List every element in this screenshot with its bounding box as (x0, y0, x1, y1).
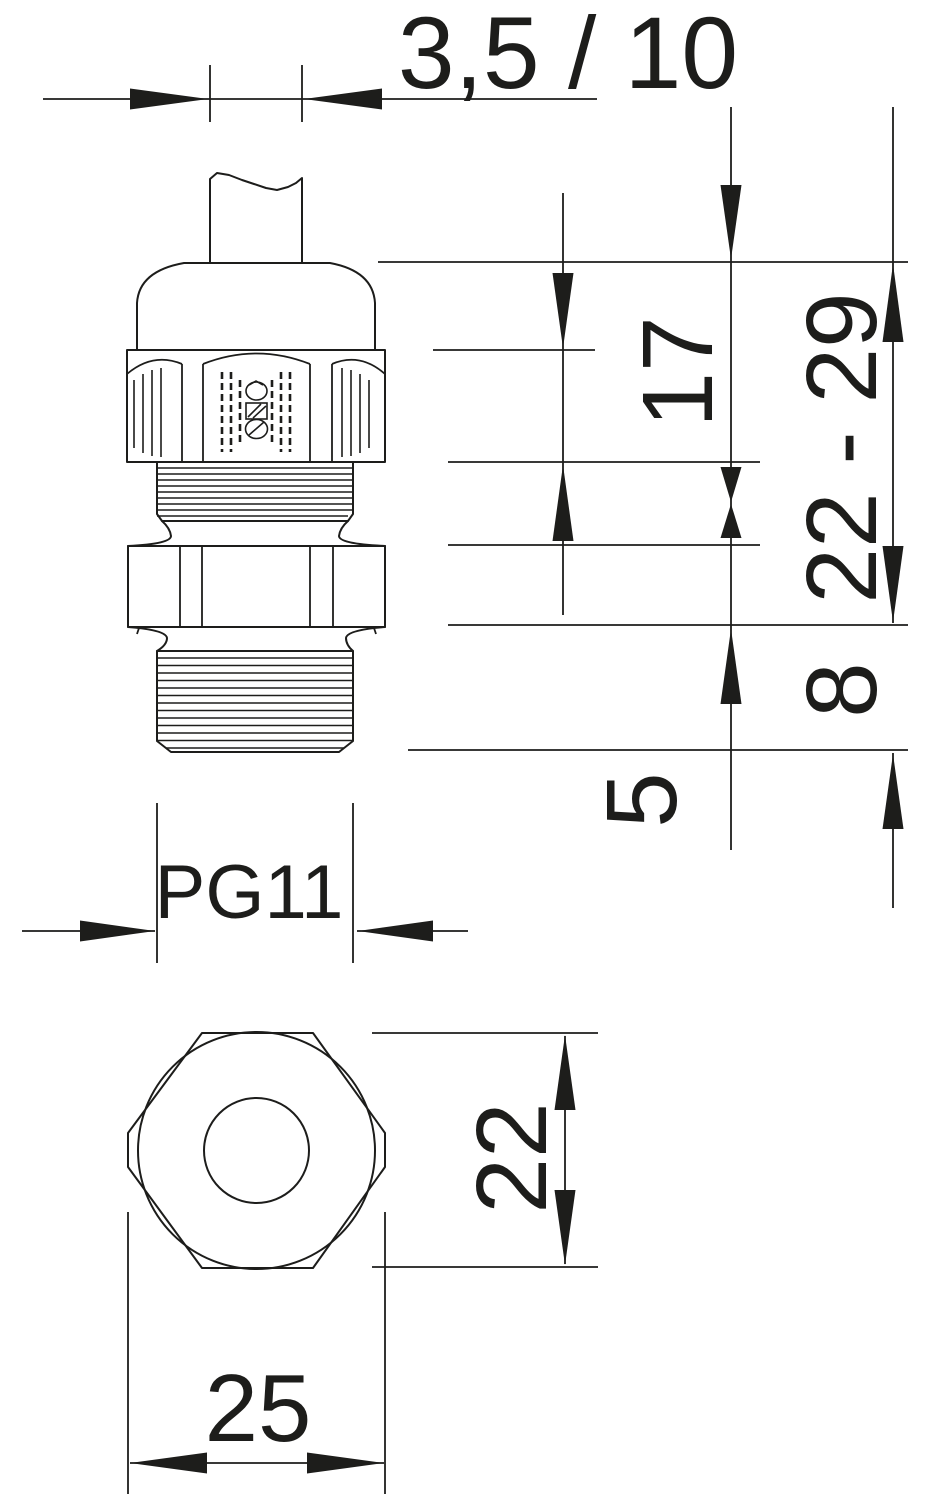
arrow-down-icon (553, 273, 574, 348)
side-view (127, 173, 385, 752)
lower-waist-right (346, 627, 385, 651)
arrow-up-icon (553, 465, 574, 541)
lower-waist-left (128, 627, 167, 651)
arrow-left-icon (130, 1453, 207, 1474)
dim-across-flats: 22 (372, 1033, 598, 1267)
body-hex-ticks (137, 628, 376, 634)
arrow-down-icon (721, 185, 742, 259)
dim-thread-size: PG11 (22, 803, 468, 963)
cap-circle (138, 1032, 375, 1269)
right-dimensions: 17 22 - 29 8 5 (378, 107, 908, 908)
cap-nut-knurl-right (342, 368, 369, 457)
knurled-ring-lines (157, 468, 353, 516)
cable-break-line (210, 173, 302, 263)
cap-nut-corner-right (332, 360, 385, 374)
body-hex-outline (128, 546, 385, 627)
dim-thread-length-label: 8 (786, 662, 898, 718)
arrow-right-icon (307, 1453, 384, 1474)
dim-across-corners-label: 25 (205, 1355, 312, 1462)
cap-nut-knurl-left (134, 368, 161, 457)
cap-nut-arch (203, 354, 310, 365)
arrow-up-icon (555, 1035, 576, 1110)
dim-across-corners: 25 (128, 1212, 385, 1494)
body-hex-face-lines (180, 546, 333, 627)
dim-across-flats-label: 22 (456, 1102, 568, 1213)
dim-thread-size-label: PG11 (155, 850, 344, 935)
dim-clamping-range: 3,5 / 10 (43, 0, 738, 122)
bore-circle (204, 1098, 309, 1203)
dim-clamping-range-label: 3,5 / 10 (398, 0, 738, 110)
arrow-left-icon (358, 921, 433, 942)
cap-nut-molded-ribs (222, 372, 290, 452)
dim-height-range-label: 22 - 29 (786, 292, 898, 603)
compression-arrow-lower-icon (721, 504, 742, 538)
arrow-up-icon (883, 754, 904, 829)
extension-ticks (210, 65, 302, 122)
arrow-right-icon (80, 921, 155, 942)
hexagon-outline (128, 1033, 385, 1268)
dim-17-label: 17 (622, 316, 734, 427)
cap-nut-emblems (246, 381, 268, 439)
dim-tip-length-label: 5 (586, 772, 698, 828)
upper-waist-left (128, 521, 171, 546)
arrow-up-icon (721, 629, 742, 704)
drawing-canvas: 3,5 / 10 17 22 - 29 8 5 (0, 0, 928, 1498)
cap-nut-outline (127, 350, 385, 462)
cap-nut-corner-left (127, 360, 182, 374)
front-view (128, 1032, 385, 1269)
upper-waist-right (339, 521, 385, 546)
compression-arrow-upper-icon (721, 467, 742, 502)
dome-cap (137, 263, 375, 350)
thread-lines (157, 658, 353, 748)
technical-drawing: 3,5 / 10 17 22 - 29 8 5 (0, 0, 928, 1498)
cap-nut-face-lines (182, 364, 332, 461)
arrow-left-icon (304, 89, 382, 110)
arrow-right-icon (130, 89, 208, 110)
